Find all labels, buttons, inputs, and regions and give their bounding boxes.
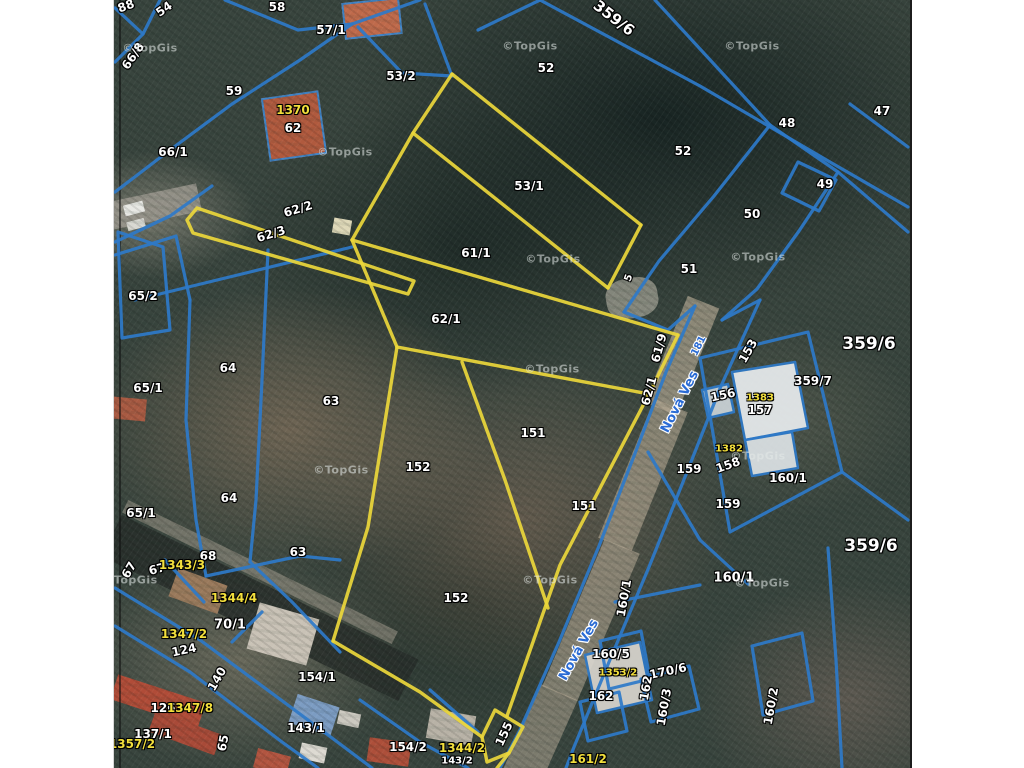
parcel-label: 57/1 [316, 23, 345, 37]
parcel-label: 160/1 [614, 578, 634, 618]
parcel-label: 359/7 [794, 374, 832, 388]
parcel-label: 61/9 [648, 332, 669, 364]
parcel-label: 160/5 [592, 647, 630, 661]
topgis-watermark: ©TopGis [730, 450, 785, 463]
topgis-watermark: ©TopGis [317, 146, 372, 159]
parcel-label: 50 [744, 207, 761, 221]
street-label: 181 [689, 334, 708, 358]
parcel-label: 152 [443, 591, 468, 605]
parcel-label: 1344/2 [439, 741, 485, 755]
scanned-cadastral-map-page: 88545857/153/252359/65913706266/866/1524… [0, 0, 1024, 768]
parcel-label: 152 [405, 460, 430, 474]
parcel-label: 65/1 [126, 506, 155, 520]
parcel-label: 62 [285, 121, 302, 135]
topgis-watermark: ©TopGis [524, 363, 579, 376]
parcel-label: 1343/3 [159, 558, 205, 572]
parcel-label: 49 [817, 177, 834, 191]
parcel-labels-layer: 88545857/153/252359/65913706266/866/1524… [0, 0, 1024, 768]
parcel-label: 359/6 [590, 0, 638, 40]
parcel-label: 154/1 [298, 670, 336, 684]
parcel-label: 155 [492, 720, 515, 749]
parcel-label: 5 [623, 273, 636, 283]
topgis-watermark: ©TopGis [724, 40, 779, 53]
topgis-watermark: ©TopGis [313, 464, 368, 477]
parcel-label: 64 [220, 361, 237, 375]
parcel-label: 359/6 [844, 536, 898, 556]
parcel-label: 65/1 [133, 381, 162, 395]
parcel-label: 51 [681, 262, 698, 276]
parcel-label: 1383 [746, 393, 774, 404]
parcel-label: 54 [153, 0, 175, 20]
parcel-label: 63 [323, 394, 340, 408]
parcel-label: 1347/8 [167, 701, 213, 715]
parcel-label: 47 [874, 104, 891, 118]
parcel-label: 88 [116, 0, 136, 15]
parcel-label: 64 [221, 491, 238, 505]
parcel-label: 65 [215, 734, 232, 753]
parcel-label: 143/2 [441, 756, 472, 767]
parcel-label: 124 [170, 641, 197, 660]
parcel-label: 62/2 [282, 198, 314, 220]
parcel-label: 162 [637, 674, 655, 701]
parcel-label: 1353/2 [599, 668, 637, 679]
parcel-label: 1344/4 [211, 591, 257, 605]
parcel-label: 53/2 [386, 69, 415, 83]
parcel-label: 153 [736, 337, 761, 366]
parcel-label: 143/1 [287, 721, 325, 735]
parcel-label: 58 [269, 0, 286, 14]
parcel-label: 159 [676, 462, 701, 476]
parcel-label: 359/6 [842, 334, 896, 354]
parcel-label: 151 [571, 499, 596, 513]
parcel-label: 140 [205, 665, 230, 694]
parcel-label: 156 [709, 386, 736, 405]
parcel-label: 62/3 [255, 223, 287, 245]
parcel-label: 52 [675, 144, 692, 158]
topgis-watermark: ©TopGis [734, 577, 789, 590]
page-margin [0, 0, 114, 768]
parcel-label: 63 [290, 545, 307, 559]
aerial-cadastral-map[interactable]: 88545857/153/252359/65913706266/866/1524… [0, 0, 1024, 768]
topgis-watermark: ©TopGis [122, 42, 177, 55]
parcel-label: 160/2 [761, 686, 781, 726]
parcel-label: 1370 [276, 103, 309, 117]
parcel-label: 160/3 [654, 687, 674, 727]
page-margin [910, 0, 1024, 768]
parcel-label: 161/2 [569, 752, 607, 766]
parcel-label: 162 [588, 689, 613, 703]
parcel-label: 59 [226, 84, 243, 98]
parcel-label: 48 [779, 116, 796, 130]
parcel-label: 1347/2 [161, 627, 207, 641]
parcel-label: 52 [538, 61, 555, 75]
topgis-watermark: ©TopGis [525, 253, 580, 266]
parcel-label: 1357/2 [109, 737, 155, 751]
parcel-label: 61/1 [461, 246, 490, 260]
topgis-watermark: ©TopGis [502, 40, 557, 53]
parcel-label: 160/1 [769, 471, 807, 485]
parcel-label: 62/1 [638, 375, 659, 407]
parcel-label: 66/1 [158, 145, 187, 159]
parcel-label: 70/1 [214, 618, 246, 633]
parcel-label: 151 [520, 426, 545, 440]
street-label: Nová Ves [658, 369, 702, 436]
parcel-label: 154/2 [389, 740, 427, 754]
parcel-label: 65/2 [128, 289, 157, 303]
topgis-watermark: ©TopGis [522, 574, 577, 587]
parcel-label: 157 [747, 403, 772, 417]
parcel-label: 159 [715, 497, 740, 511]
parcel-label: 62/1 [431, 312, 460, 326]
parcel-label: 53/1 [514, 179, 543, 193]
topgis-watermark: ©TopGis [730, 251, 785, 264]
